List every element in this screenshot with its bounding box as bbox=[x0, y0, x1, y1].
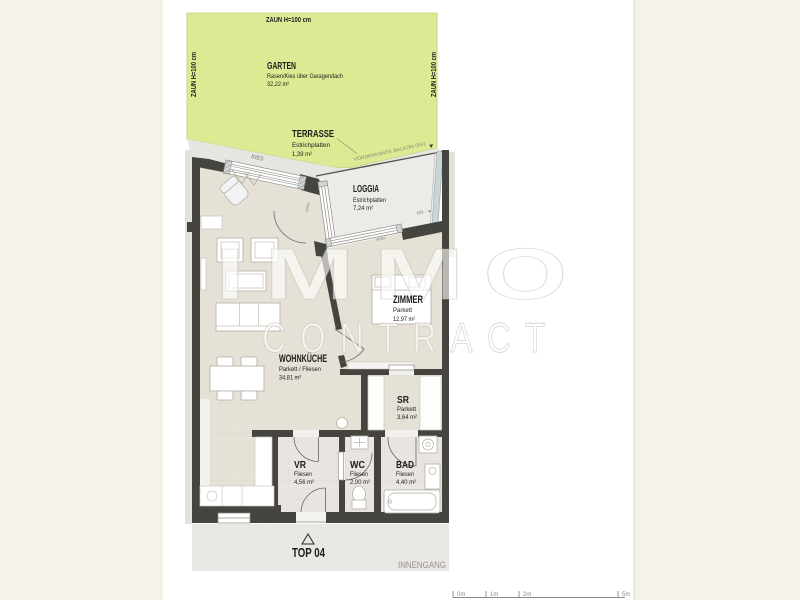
svg-text:Parkett: Parkett bbox=[397, 406, 416, 413]
svg-text:ZAUN H=100 cm: ZAUN H=100 cm bbox=[266, 17, 311, 24]
svg-text:12,97 m²: 12,97 m² bbox=[393, 316, 416, 323]
svg-text:Parkett: Parkett bbox=[393, 307, 412, 314]
svg-text:Fliesen: Fliesen bbox=[350, 471, 368, 478]
svg-text:INNENGANG: INNENGANG bbox=[398, 560, 446, 570]
svg-text:1m: 1m bbox=[490, 592, 498, 598]
svg-text:GARTEN: GARTEN bbox=[267, 61, 296, 72]
svg-text:4,56 m²: 4,56 m² bbox=[294, 479, 315, 486]
svg-text:TOP 04: TOP 04 bbox=[292, 545, 326, 560]
svg-text:BAD: BAD bbox=[396, 460, 414, 471]
svg-text:32,22 m²: 32,22 m² bbox=[267, 81, 290, 88]
svg-text:5m: 5m bbox=[622, 592, 630, 598]
svg-text:SR: SR bbox=[397, 395, 410, 406]
svg-text:ZAUN H=100 cm: ZAUN H=100 cm bbox=[191, 52, 198, 97]
svg-text:Fliesen: Fliesen bbox=[396, 471, 414, 478]
svg-text:Fliesen: Fliesen bbox=[294, 471, 312, 478]
svg-text:WC: WC bbox=[350, 460, 365, 471]
svg-text:Parkett / Fliesen: Parkett / Fliesen bbox=[279, 366, 321, 373]
svg-text:Rasen/Kies über Garagendach: Rasen/Kies über Garagendach bbox=[267, 73, 343, 80]
svg-text:34,81 m²: 34,81 m² bbox=[279, 375, 302, 382]
svg-text:2m: 2m bbox=[523, 592, 531, 598]
svg-text:TERRASSE: TERRASSE bbox=[292, 129, 334, 140]
svg-text:1,39 m²: 1,39 m² bbox=[292, 151, 313, 158]
svg-text:VR: VR bbox=[294, 460, 307, 471]
svg-text:WOHNKÜCHE: WOHNKÜCHE bbox=[279, 352, 327, 365]
svg-text:ZIMMER: ZIMMER bbox=[393, 294, 423, 306]
svg-text:3,64 m²: 3,64 m² bbox=[397, 414, 418, 421]
svg-text:0m: 0m bbox=[457, 592, 465, 598]
svg-text:LOGGIA: LOGGIA bbox=[353, 183, 379, 195]
svg-text:Estrichplatten: Estrichplatten bbox=[353, 197, 386, 204]
svg-text:7,24 m²: 7,24 m² bbox=[353, 205, 374, 212]
svg-text:2,00 m²: 2,00 m² bbox=[350, 479, 371, 486]
svg-text:Estrichplatten: Estrichplatten bbox=[292, 142, 330, 149]
svg-text:ZAUN H=100 cm: ZAUN H=100 cm bbox=[431, 52, 438, 97]
svg-text:4,40 m²: 4,40 m² bbox=[396, 479, 417, 486]
